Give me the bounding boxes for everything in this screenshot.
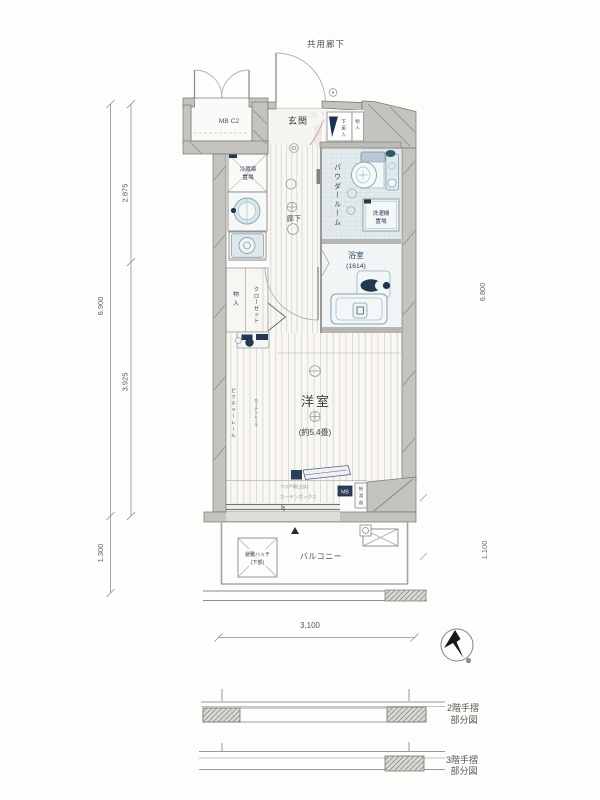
svg-text:下足入: 下足入 <box>341 119 346 138</box>
svg-text:部分図: 部分図 <box>450 714 477 725</box>
svg-text:共用廊下: 共用廊下 <box>307 39 345 49</box>
svg-text:MB C2: MB C2 <box>219 118 239 125</box>
svg-text:3,100: 3,100 <box>300 621 321 630</box>
svg-text:(1614): (1614) <box>346 263 366 270</box>
svg-text:カーテンボックス: カーテンボックス <box>280 494 317 501</box>
svg-text:2階手摺: 2階手摺 <box>447 702 479 713</box>
svg-text:部分図: 部分図 <box>450 765 477 776</box>
svg-text:避難ハッチ: 避難ハッチ <box>245 551 270 558</box>
svg-text:廊下: 廊下 <box>287 214 301 223</box>
svg-text:バルコニー: バルコニー <box>300 552 342 561</box>
svg-text:MB: MB <box>341 490 349 496</box>
svg-text:6.900: 6.900 <box>96 297 105 316</box>
svg-text:2.875: 2.875 <box>121 184 130 203</box>
svg-text:1.300: 1.300 <box>96 544 105 563</box>
svg-text:置場: 置場 <box>375 217 387 225</box>
svg-text:冷蔵庫: 冷蔵庫 <box>240 165 257 173</box>
svg-text:浴室: 浴室 <box>348 250 364 260</box>
svg-text:3.925: 3.925 <box>121 373 130 392</box>
svg-text:玄関: 玄関 <box>288 115 308 126</box>
svg-text:6.800: 6.800 <box>478 283 487 302</box>
svg-text:(約5.4畳): (約5.4畳) <box>299 427 332 437</box>
svg-text:クロ丨ゼット: クロ丨ゼット <box>254 286 259 325</box>
svg-text:置場: 置場 <box>242 173 254 181</box>
svg-text:つり戸棚(上部): つり戸棚(上部) <box>280 483 309 490</box>
svg-text:カ丨テンレ丨ル: カ丨テンレ丨ル <box>254 398 258 427</box>
svg-text:3階手摺: 3階手摺 <box>446 754 478 765</box>
svg-text:1.100: 1.100 <box>480 541 489 560</box>
svg-text:洋室: 洋室 <box>301 394 331 409</box>
svg-text:(下部): (下部) <box>251 559 265 566</box>
svg-text:洗濯機: 洗濯機 <box>373 209 390 217</box>
